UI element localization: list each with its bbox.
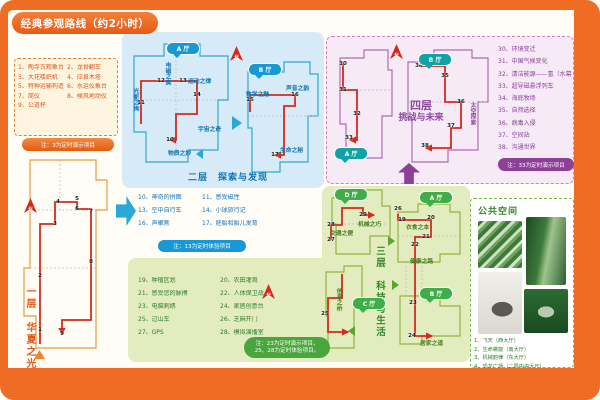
exhibit-item: 10、神奇的拼图 [138, 194, 200, 201]
route-stop-number: 32 [353, 111, 361, 117]
route-stop-number: 9 [60, 331, 64, 337]
floor2a-route [141, 81, 197, 140]
floor1-exhibit-list: 1、陶寺古观象台2、龙骨翻车3、大花楼织机4、应县木塔5、特种运输构造6、水运仪… [18, 64, 114, 109]
route-stop-number: 25 [321, 311, 329, 317]
exhibit-number: 31、 [498, 58, 512, 65]
route-stop-number: 16 [291, 92, 299, 98]
exhibit-item: 17、胚胎和胎儿发育 [202, 220, 266, 227]
exhibit-name: 小球旅行记 [216, 207, 246, 214]
exhibit-name: 病毒入侵 [512, 120, 536, 127]
route-stop-number: 19 [398, 217, 406, 223]
hall-pill: A 厅 [166, 42, 200, 55]
exhibit-name: 超导磁悬浮列车 [512, 83, 554, 90]
hall-pill: B 厅 [248, 63, 282, 76]
exhibit-number: 20、 [220, 277, 234, 284]
exhibit-name: 应县木塔 [77, 74, 101, 81]
floor2-title: 二层 探索与发现 [188, 170, 268, 183]
exhibit-item: 34、海底牧场 [498, 93, 572, 105]
exhibit-number: 4、 [67, 74, 77, 81]
exhibit-name: 家居创意台 [234, 303, 264, 310]
floor1-route [40, 202, 91, 344]
route-stop-number: 15 [246, 97, 254, 103]
exhibit-item: 20、农田灌溉 [220, 277, 316, 284]
public-space-captions: 1、飞天（西大厅）2、生命螺旋（南大厅）3、机械韵律（东大厅）4、恐龙广场（二层… [474, 338, 570, 370]
exhibit-number: 34、 [498, 95, 512, 102]
north-compass-icon: 北 [24, 198, 37, 213]
route-stop-number: 13 [179, 78, 187, 84]
hall-area-label: 交通之便 [330, 228, 353, 237]
exhibit-number: 27、 [138, 329, 152, 336]
exhibit-name: 自然选择 [512, 107, 536, 114]
hall-area-label: 声音之韵 [286, 83, 309, 92]
public-space-caption: 3、机械韵律（东大厅） [474, 355, 529, 362]
route-stop-number: 8 [89, 259, 93, 265]
exhibit-number: 14、 [202, 207, 216, 214]
exhibit-name: 农田灌溉 [234, 277, 258, 284]
exhibit-item: 24、家居创意台 [220, 303, 316, 310]
hall-area-label: 生命之秘 [280, 145, 303, 154]
route-stop-number: 33 [345, 135, 353, 141]
exhibit-number: 26、 [220, 316, 234, 323]
hall-area-label: 物质之妙 [168, 148, 191, 157]
exhibit-number: 28、 [220, 329, 234, 336]
floor4-title-line1: 四层 [388, 100, 454, 112]
museum-route-poster: 经典参观路线（约2小时） 1、陶寺古观象台2、龙骨翻车3、大花楼织机4、应县木塔… [0, 0, 600, 400]
exhibit-name: 过山车 [152, 316, 170, 323]
exhibit-item: 23、电脑刺绣 [138, 303, 218, 310]
exhibit-name: 大花楼织机 [28, 74, 58, 81]
exhibit-name: 芝麻开门 [234, 316, 258, 323]
exhibit-name: 水运仪象台 [77, 83, 107, 90]
route-stop-number: 11 [137, 100, 145, 106]
public-space-caption: 1、飞天（西大厅） [474, 338, 519, 345]
exhibit-item: 38、沟通世界 [498, 142, 572, 154]
exhibit-item: 16、声聚焦 [138, 220, 200, 227]
exhibit-name: GPS [152, 329, 164, 336]
exhibit-name: 空中自行车 [152, 207, 182, 214]
route-stop-number: 30 [339, 61, 347, 67]
public-space-caption: 4、恐龙广场（二层中央大厅） [474, 364, 545, 371]
route-stop-number: 31 [339, 87, 347, 93]
hall-area-label: 太空探索 [468, 102, 477, 125]
route-stop-number: 29 [359, 212, 367, 218]
exhibit-item: 36、病毒入侵 [498, 118, 572, 130]
route-stop-number: 24 [408, 333, 416, 339]
route-stop-number: 6 [75, 206, 79, 212]
route-stop-number: 1 [38, 327, 42, 333]
exhibit-item: 14、小球旅行记 [202, 207, 266, 214]
exhibit-item: 25、过山车 [138, 316, 218, 323]
route-stop-number: 23 [409, 300, 417, 306]
exhibit-item: 28、模拟演播室 [220, 329, 316, 336]
exhibit-number: 2、 [67, 64, 77, 71]
exhibit-item: 37、空间站 [498, 130, 572, 142]
exhibit-item: 32、清洁能源——氢（水幕） [498, 69, 572, 81]
spiral-staircase-photo [526, 217, 566, 285]
exhibit-name: 简仪 [28, 93, 40, 100]
exhibit-number: 32、 [498, 71, 512, 78]
exhibit-number: 30、 [498, 46, 512, 53]
exhibit-name: 清洁能源——氢（水幕） [512, 71, 572, 78]
exhibit-name: 特种运输构造 [28, 83, 64, 90]
north-compass-icon: 北 [230, 46, 243, 61]
exhibit-number: 25、 [138, 316, 152, 323]
exhibit-number: 13、 [138, 207, 152, 214]
hall-area-label: 宇宙之奇 [198, 124, 221, 133]
route-stop-number: 37 [447, 123, 455, 129]
floor3-note-pill: 注：23为定时演示项目， 25、28为定时体验项目。 [244, 337, 330, 358]
exhibit-number: 19、 [138, 277, 152, 284]
exhibit-number: 6、 [67, 83, 77, 90]
hall-area-label: 健康之路 [410, 256, 433, 265]
hall-area-label: 运动之律 [188, 76, 211, 85]
floor1-title: 一层 华夏之光 [22, 286, 37, 370]
route-stop-number: 4 [56, 199, 60, 205]
exhibit-item: 27、GPS [138, 329, 218, 336]
route-stop-number: 14 [193, 92, 201, 98]
floor3ab-route [398, 214, 432, 336]
floor4-title: 四层 挑战与未来 [388, 100, 454, 124]
exhibit-number: 38、 [498, 144, 512, 151]
exhibit-number: 24、 [220, 303, 234, 310]
relief-mural-photo [524, 289, 568, 333]
exhibit-number: 17、 [202, 220, 216, 227]
floor3-title: 三层 科技与生活 [372, 246, 386, 338]
exhibit-name: 神奇的拼图 [152, 194, 182, 201]
exhibit-number: 10、 [138, 194, 152, 201]
hall-pill: B 厅 [419, 287, 453, 300]
exhibit-number: 3、 [18, 74, 28, 81]
route-stop-number: 10 [166, 137, 174, 143]
exhibit-number: 5、 [18, 83, 28, 90]
floor1-exhibit-list-box: 1、陶寺古观象台2、龙骨翻车3、大花楼织机4、应县木塔5、特种运输构造6、水运仪… [14, 58, 118, 136]
dinosaur-skeleton-photo [478, 272, 522, 334]
exhibit-name: 空间站 [512, 132, 530, 139]
exhibit-number: 35、 [498, 107, 512, 114]
route-stop-number: 38 [421, 143, 429, 149]
floor4-title-line2: 挑战与未来 [388, 112, 454, 124]
exhibit-number: 21、 [138, 290, 152, 297]
floor2-exhibit-list: 10、神奇的拼图11、感受磁性13、空中自行车14、小球旅行记16、声聚焦17、… [138, 194, 264, 227]
exhibit-number: 16、 [138, 220, 152, 227]
exhibit-name: 声聚焦 [152, 220, 170, 227]
route-stop-number: 36 [457, 99, 465, 105]
exhibit-item: 6、水运仪象台 [67, 83, 114, 90]
route-stop-number: 7 [89, 209, 93, 215]
route-stop-number: 17 [271, 152, 279, 158]
route-stop-number: 22 [411, 242, 419, 248]
floor4a-route [343, 64, 357, 140]
exhibit-name: 环境变迁 [512, 46, 536, 53]
exhibit-item: 33、超导磁悬浮列车 [498, 81, 572, 93]
exhibit-item: 11、感受磁性 [202, 194, 266, 201]
exhibit-item: 9、公道杯 [18, 102, 65, 109]
floor3-exhibit-list: 19、种植区划20、农田灌溉21、感受您的脉搏22、人体保卫战23、电脑刺绣24… [138, 277, 314, 336]
exhibit-name: 模拟演播室 [234, 329, 264, 336]
exhibit-number: 36、 [498, 120, 512, 127]
north-compass-icon: 北 [390, 44, 403, 59]
exhibit-item: 35、自然选择 [498, 105, 572, 117]
hall-pill: A 厅 [419, 191, 453, 204]
route-stop-number: 28 [327, 222, 335, 228]
exhibit-item: 5、特种运输构造 [18, 83, 65, 90]
exhibit-item: 3、大花楼织机 [18, 74, 65, 81]
exhibit-item: 7、简仪 [18, 93, 65, 100]
hall-area-label: 机械之巧 [358, 219, 381, 228]
floor1-note-pill: 注：3为定时演示项目 [22, 138, 114, 151]
route-stop-number: 26 [394, 206, 402, 212]
exhibit-item: 4、应县木塔 [67, 74, 114, 81]
exhibit-number: 33、 [498, 83, 512, 90]
hall-area-label: 居家之道 [420, 338, 443, 347]
route-stop-number: 2 [38, 273, 42, 279]
exhibit-number: 8、 [67, 93, 77, 100]
hall-area-label: 衣食之本 [406, 222, 429, 231]
ceiling-art-photo [478, 221, 522, 268]
exhibit-number: 23、 [138, 303, 152, 310]
exhibit-number: 9、 [18, 102, 28, 109]
exhibit-number: 37、 [498, 132, 512, 139]
north-compass-icon: 北 [262, 284, 275, 299]
hall-area-label: 信息之桥 [334, 288, 343, 311]
exhibit-number: 22、 [220, 290, 234, 297]
exhibit-name: 公道杯 [28, 102, 46, 109]
exhibit-item: 2、龙骨翻车 [67, 64, 114, 71]
exhibit-name: 候风地动仪 [77, 93, 107, 100]
exhibit-name: 海底牧场 [512, 95, 536, 102]
floor4-exhibit-list: 30、环境变迁31、中国气候变化32、清洁能源——氢（水幕）33、超导磁悬浮列车… [498, 44, 572, 155]
public-space-caption: 2、生命螺旋（南大厅） [474, 347, 529, 354]
exhibit-name: 电脑刺绣 [152, 303, 176, 310]
exhibit-item: 13、空中自行车 [138, 207, 200, 214]
exhibit-item: 19、种植区划 [138, 277, 218, 284]
hall-pill: C 厅 [352, 297, 386, 310]
route-stop-number: 21 [422, 234, 430, 240]
exhibit-item: 1、陶寺古观象台 [18, 64, 65, 71]
exhibit-item: 8、候风地动仪 [67, 93, 114, 100]
exhibit-item: 26、芝麻开门 [220, 316, 316, 323]
exhibit-name: 中国气候变化 [512, 58, 548, 65]
exhibit-name: 龙骨翻车 [77, 64, 101, 71]
floor2-note-pill: 注：13为定时体验项目 [158, 240, 246, 252]
exhibit-number: 11、 [202, 194, 216, 201]
exhibit-name: 胚胎和胎儿发育 [216, 220, 258, 227]
exhibit-number: 1、 [18, 64, 28, 71]
route-stop-number: 35 [441, 73, 449, 79]
exhibit-name: 感受您的脉搏 [152, 290, 188, 297]
exhibit-item: 30、环境变迁 [498, 44, 572, 56]
hall-pill: D 厅 [334, 188, 368, 201]
floor4-note-pill: 注：33为定时演示项目 [498, 158, 574, 171]
exhibit-item: 31、中国气候变化 [498, 56, 572, 68]
poster-title: 经典参观路线（约2小时） [12, 12, 158, 34]
hall-pill: A 厅 [334, 147, 368, 160]
exhibit-name: 感受磁性 [216, 194, 240, 201]
exhibit-name: 沟通世界 [512, 144, 536, 151]
exhibit-name: 陶寺古观象台 [28, 64, 64, 71]
public-space-title: 公共空间 [478, 204, 518, 217]
exhibit-name: 人体保卫战 [234, 290, 264, 297]
route-stop-number: 20 [427, 215, 435, 221]
exhibit-name: 种植区划 [152, 277, 176, 284]
route-stop-number: 12 [157, 78, 165, 84]
exhibit-number: 7、 [18, 93, 28, 100]
route-stop-number: 5 [75, 196, 79, 202]
exhibit-item: 21、感受您的脉搏 [138, 290, 218, 297]
route-stop-number: 27 [327, 237, 335, 243]
hall-pill: B 厅 [418, 53, 452, 66]
route-stop-number: 3 [53, 221, 57, 227]
